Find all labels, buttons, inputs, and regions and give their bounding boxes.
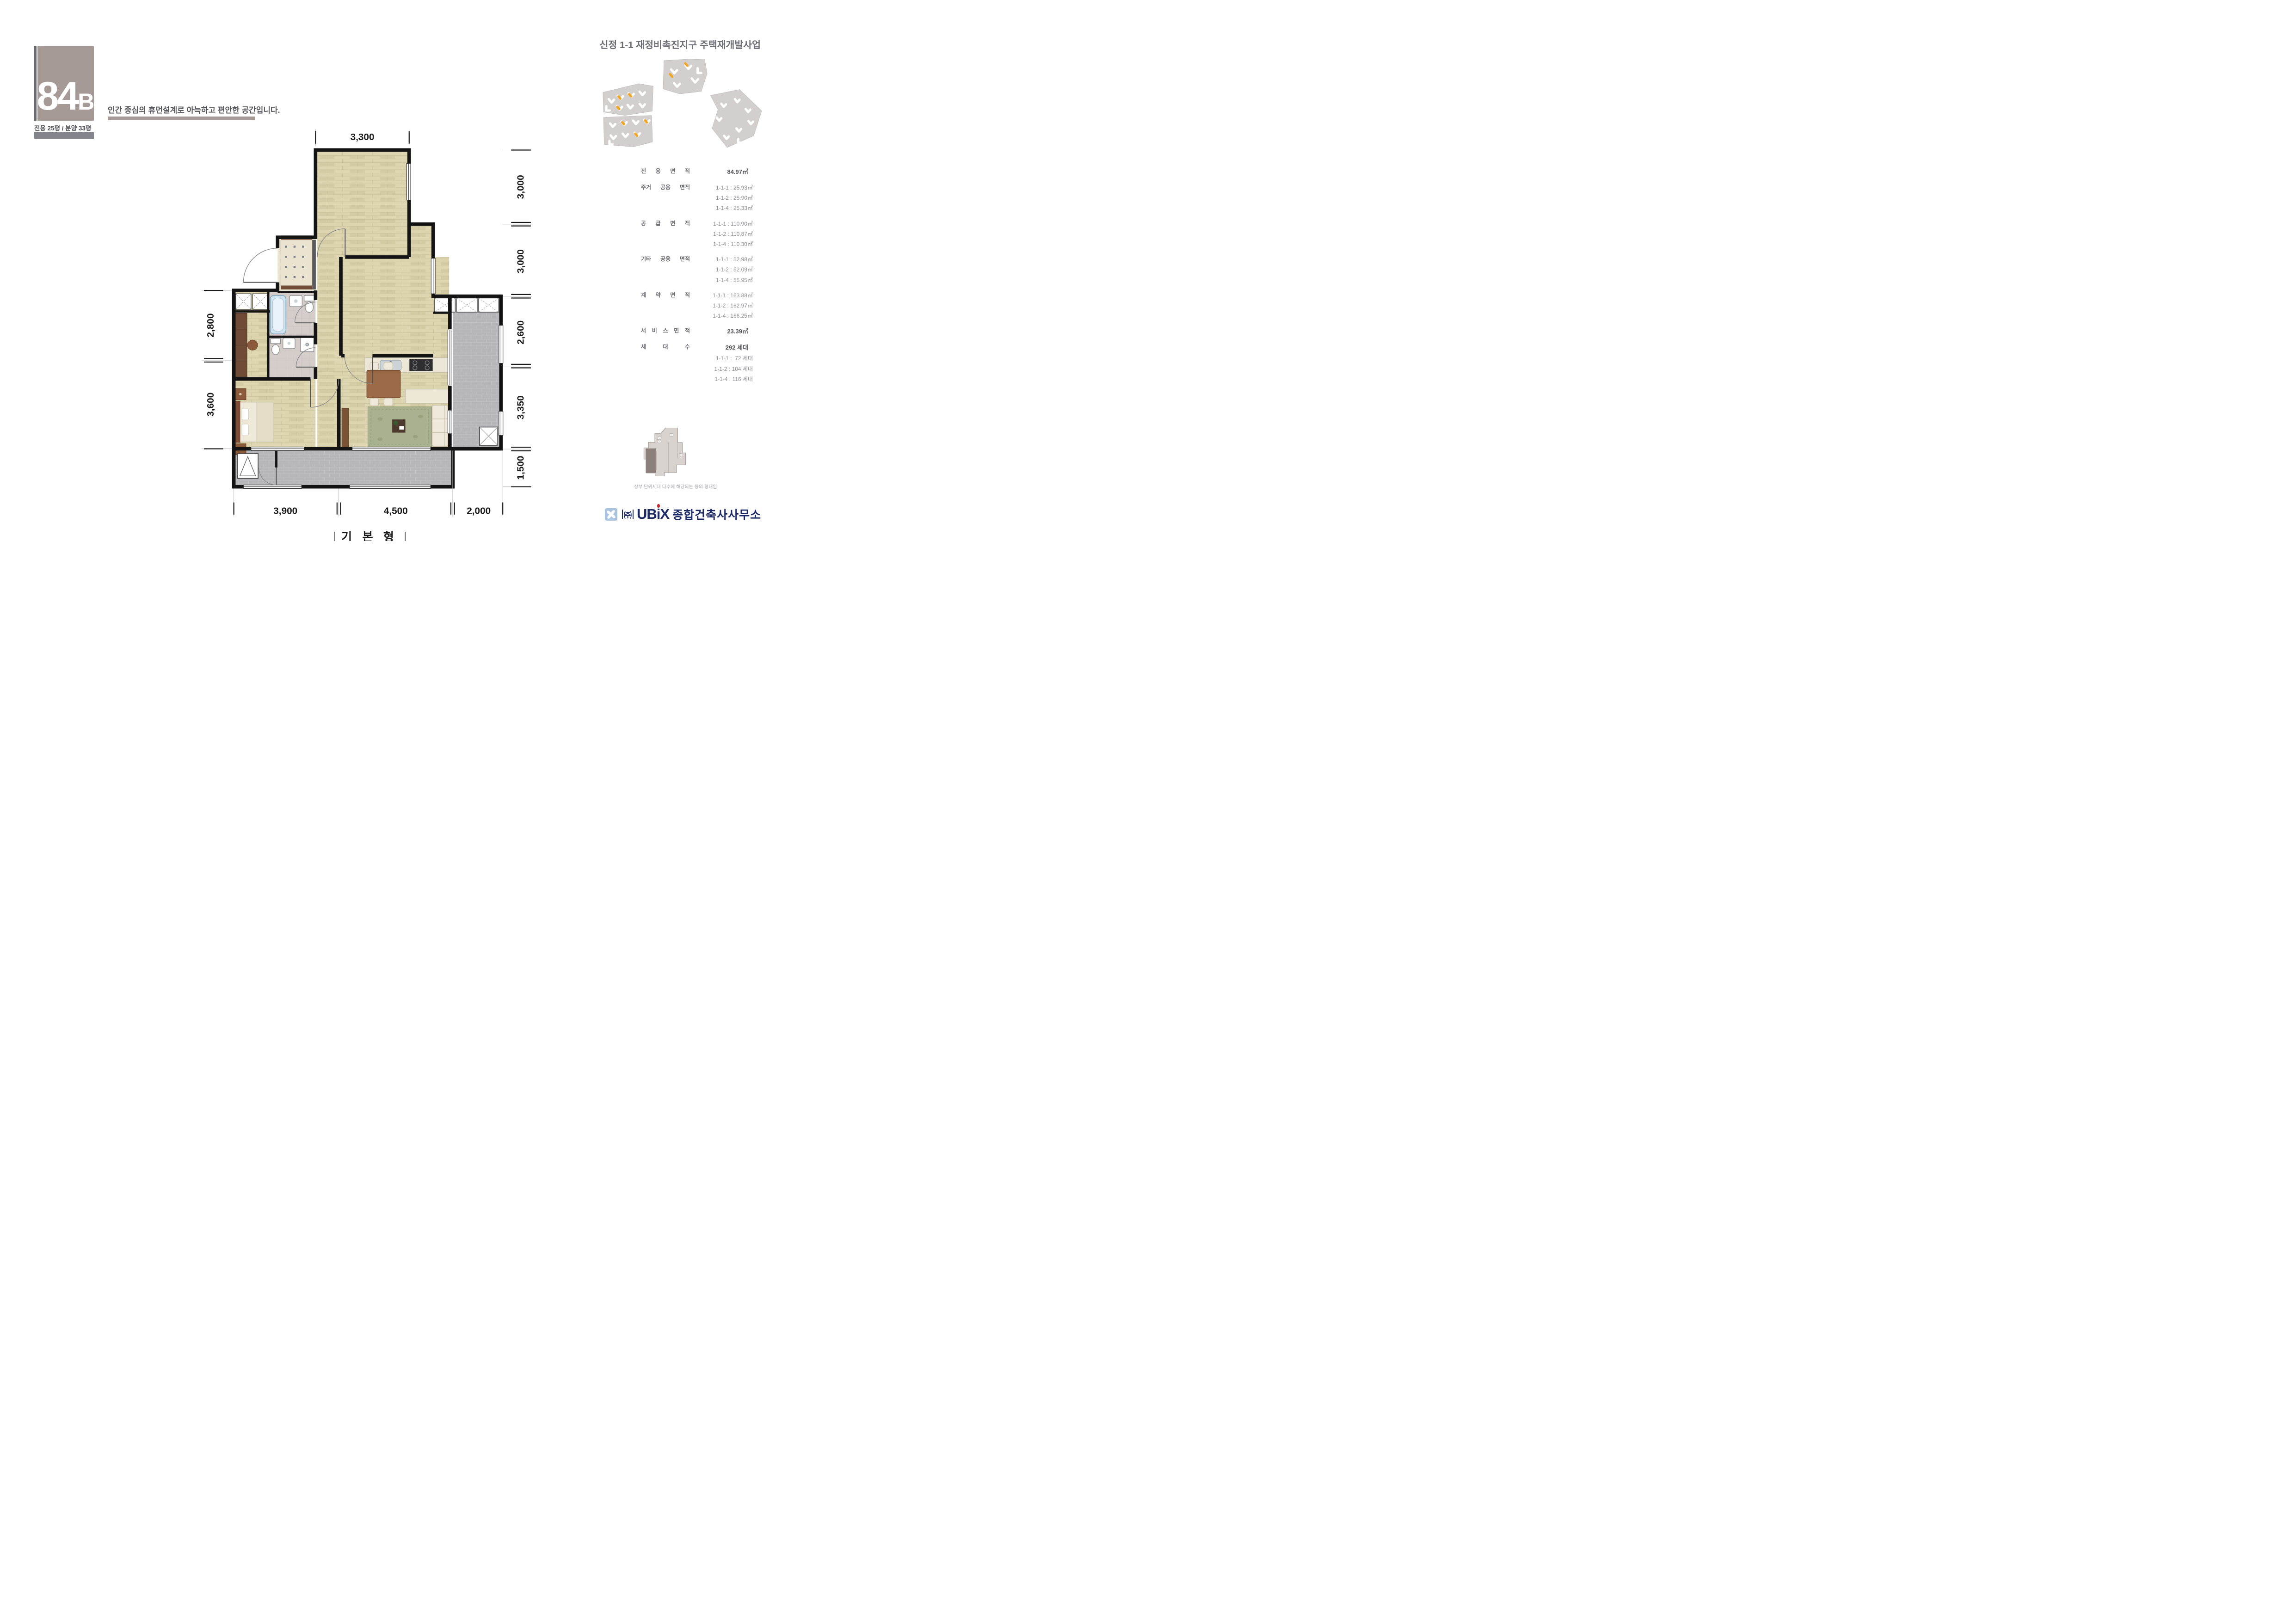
dim-bottom-1: 4,500	[384, 506, 408, 516]
toilet-1	[304, 295, 314, 313]
table-row: 세 대 수 292 세대 1-1-1 : 72 세대 1-1-2 : 104 세…	[641, 342, 753, 384]
chair	[384, 362, 393, 369]
floor-plan: 3,300 3,000 3,000 2,600 3,350 1,500 2,80…	[188, 118, 547, 541]
building-footprint-diagram	[642, 426, 690, 480]
pillow	[242, 408, 248, 420]
badge-underbar	[34, 132, 94, 139]
tagline: 인간 중심의 휴먼설계로 아늑하고 편안한 공간입니다.	[108, 104, 280, 115]
dim-left-1: 3,600	[205, 393, 216, 417]
table-row: 기타 공용 면적 1-1-1 : 52.98㎡ 1-1-2 : 52.09㎡ 1…	[641, 254, 753, 285]
table-row: 전 용 면 적 84.97㎡	[641, 166, 753, 178]
table-row: 계 약 면 적 1-1-1 : 163.88㎡ 1-1-2 : 162.97㎡ …	[641, 290, 753, 321]
plan-caption-text: 기 본 형	[341, 531, 398, 541]
unit-number: 84	[37, 80, 78, 112]
plan-caption: 기 본 형	[334, 531, 405, 541]
bed-headboard	[235, 401, 240, 443]
master-bedroom-floor	[268, 379, 315, 449]
site-location-map	[593, 59, 765, 149]
brand-name: UBiX	[637, 506, 669, 523]
area-spec-table: 전 용 면 적 84.97㎡ 주거 공용 면적 1-1-1 : 25.93㎡ 1…	[641, 166, 753, 389]
dim-right-3: 3,350	[516, 395, 526, 419]
dim-bottom-0: 3,900	[273, 506, 297, 516]
dim-right-1: 3,000	[516, 249, 526, 273]
dim-bottom-2: 2,000	[467, 506, 491, 516]
architect-logo: ㈜ UBiX 종합건축사사무소	[605, 506, 761, 523]
dining-table	[367, 370, 400, 398]
dim-right-2: 2,600	[516, 320, 526, 344]
dim-top: 3,300	[351, 132, 375, 142]
entry-marble-panel	[312, 240, 316, 289]
stove	[409, 359, 432, 371]
table-row: 서 비 스 면 적 23.39㎡	[641, 326, 753, 337]
entry-cabinet-bottom	[281, 285, 312, 289]
sofa	[432, 405, 448, 446]
footprint-note: 상부 단위세대 다수에 해당되는 동의 형태임	[634, 483, 717, 490]
kitchen-island	[406, 389, 450, 403]
ubix-logo-icon	[605, 508, 617, 521]
unit-area-spec: 전용 25평 / 분양 33평	[34, 123, 91, 132]
tv-cabinet	[342, 408, 348, 448]
project-title: 신정 1-1 재정비촉진지구 주택재개발사업	[509, 37, 761, 51]
table-row: 주거 공용 면적 1-1-1 : 25.93㎡ 1-1-2 : 25.90㎡ 1…	[641, 183, 753, 214]
dim-right-4: 1,500	[516, 456, 526, 480]
balcony-bottom-floor	[235, 450, 451, 485]
badge-accent-bar	[34, 46, 37, 121]
balcony-right-floor	[453, 298, 499, 447]
table-row: 공 급 면 적 1-1-1 : 110.90㎡ 1-1-2 : 110.87㎡ …	[641, 219, 753, 250]
chair	[384, 398, 393, 406]
dim-right-0: 3,000	[516, 175, 526, 199]
dim-left-0: 2,800	[205, 314, 216, 338]
chair	[370, 362, 379, 369]
unit-letter: B	[78, 92, 94, 112]
brand-suffix: 종합건축사사무소	[672, 506, 761, 523]
brochure-page: 84 B 전용 25평 / 분양 33평 인간 중심의 휴먼설계로 아늑하고 편…	[0, 0, 765, 541]
company-prefix: ㈜	[621, 509, 634, 520]
toilet-2	[271, 338, 281, 355]
pillow	[242, 424, 248, 436]
chair	[370, 398, 379, 406]
console-table	[247, 340, 258, 350]
highlighted-unit	[646, 449, 656, 473]
unit-type-badge: 84 B	[37, 46, 94, 121]
